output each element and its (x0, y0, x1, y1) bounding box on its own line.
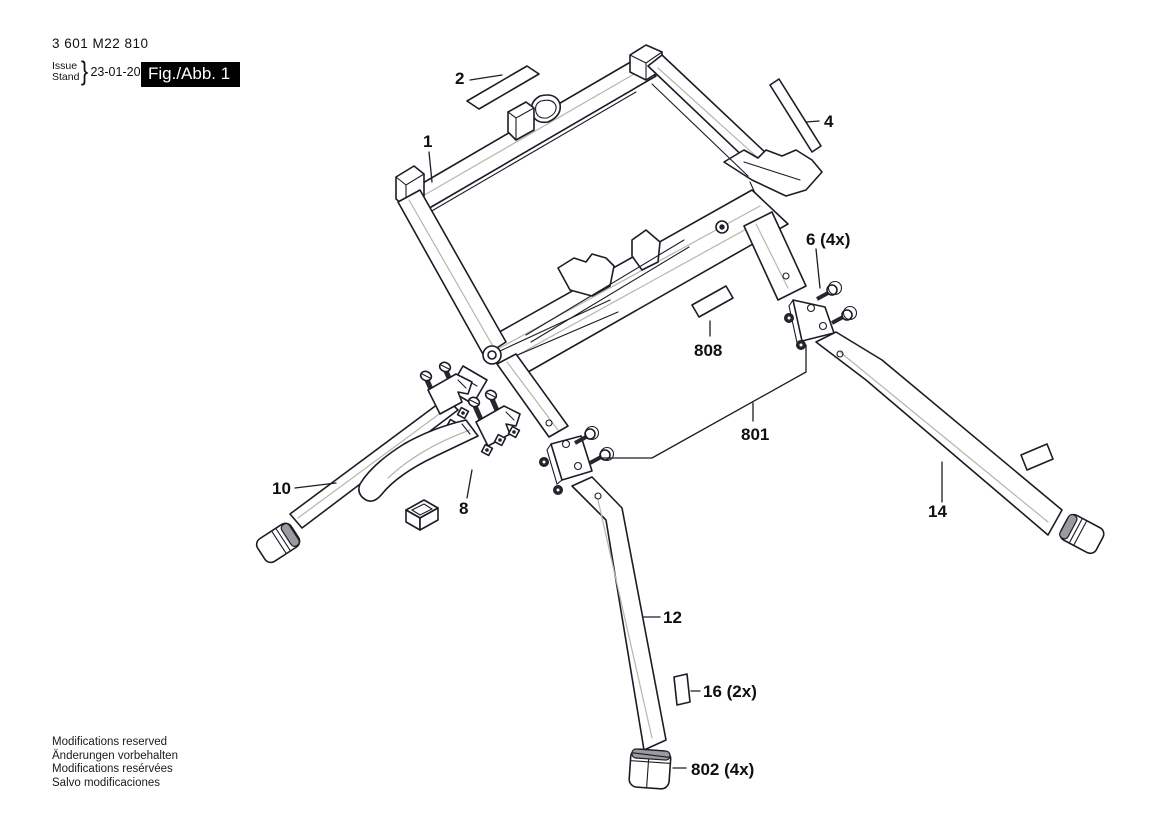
screw-icon (467, 396, 482, 422)
square-nut-icon (482, 445, 493, 456)
leg-12 (572, 477, 666, 750)
leader-lines (295, 75, 942, 768)
sticker-808 (692, 286, 733, 317)
sticker-4 (770, 79, 821, 152)
exploded-diagram: 1 2 4 6 (4x) 8 10 12 14 16 (2x) 801 802 … (0, 0, 1169, 826)
callout-801: 801 (741, 425, 769, 444)
callout-1: 1 (423, 132, 432, 151)
callout-802: 802 (4x) (691, 760, 754, 779)
screw-icon (817, 282, 842, 300)
callout-2: 2 (455, 69, 464, 88)
nut-icon (785, 314, 794, 323)
foot-cap-right (1058, 512, 1106, 556)
callout-10: 10 (272, 479, 291, 498)
parts-diagram-page: { "header": { "part_number": "3 601 M22 … (0, 0, 1169, 826)
callout-14: 14 (928, 502, 947, 521)
callout-808: 808 (694, 341, 722, 360)
screw-icon (575, 427, 599, 444)
callout-12: 12 (663, 608, 682, 627)
nut-icon (554, 486, 563, 495)
foot-cap-left (254, 521, 302, 565)
callout-labels: 1 2 4 6 (4x) 8 10 12 14 16 (2x) 801 802 … (272, 69, 947, 779)
nut-icon (797, 341, 806, 350)
screw-icon (590, 448, 614, 464)
square-nut-icon (509, 427, 520, 438)
foot-802 (629, 749, 672, 790)
nut-icon (540, 458, 549, 467)
plug-cap (406, 500, 438, 530)
sticker-small-right (1021, 444, 1053, 470)
strip-16 (674, 674, 690, 705)
sticker-2 (467, 66, 539, 109)
callout-8: 8 (459, 499, 468, 518)
square-nut-icon (458, 408, 469, 419)
screw-icon (832, 307, 857, 324)
callout-6: 6 (4x) (806, 230, 850, 249)
callout-16: 16 (2x) (703, 682, 757, 701)
callout-4: 4 (824, 112, 834, 131)
